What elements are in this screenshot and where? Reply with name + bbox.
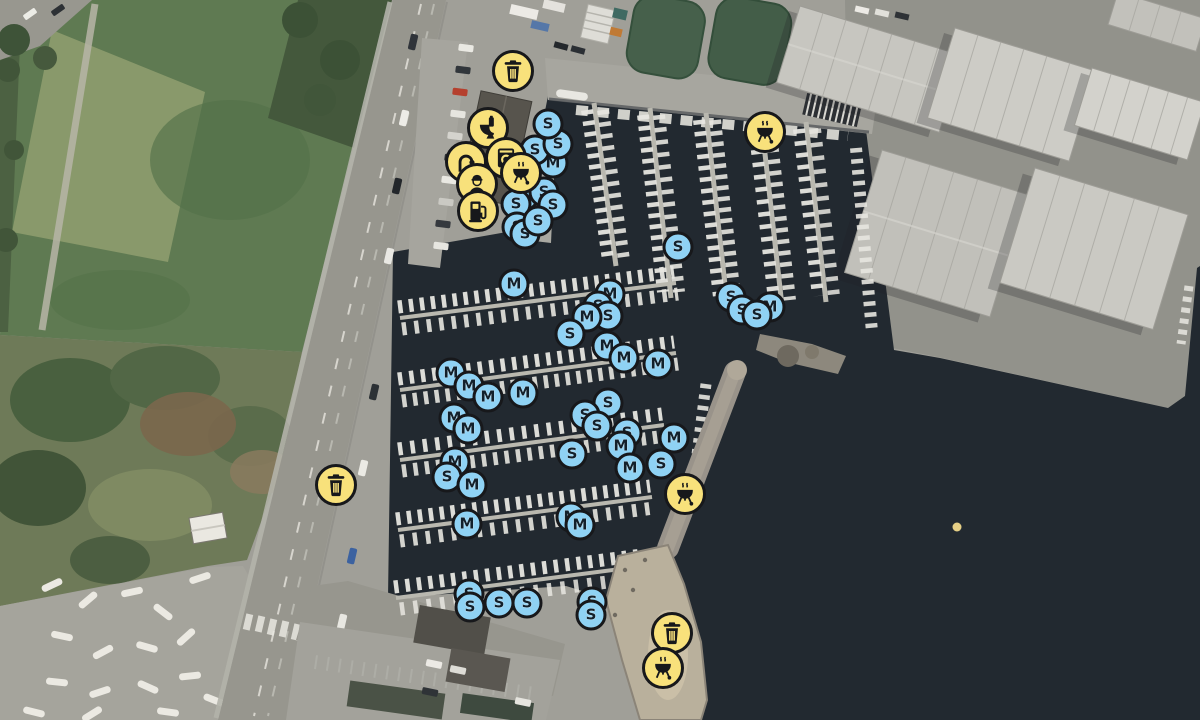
berth-marker-s[interactable]: S	[555, 319, 586, 350]
trash-icon	[500, 58, 526, 84]
grill-icon	[508, 160, 534, 186]
toilet-icon	[475, 115, 501, 141]
berth-marker-m[interactable]: M	[565, 510, 596, 541]
berth-marker-s[interactable]: S	[484, 588, 515, 619]
berth-marker-m[interactable]: M	[499, 269, 530, 300]
berth-marker-m[interactable]: M	[643, 349, 674, 380]
trash-icon	[659, 620, 685, 646]
berth-marker-s[interactable]: S	[533, 109, 564, 140]
facility-marker-grill-1[interactable]	[500, 152, 542, 194]
facility-marker-waste-1[interactable]	[492, 50, 534, 92]
berth-marker-m[interactable]: M	[615, 453, 646, 484]
facility-marker-grill-4[interactable]	[642, 647, 684, 689]
berth-marker-m[interactable]: M	[508, 378, 539, 409]
facility-marker-fuel-1[interactable]	[457, 190, 499, 232]
marina-map-canvas[interactable]: MSSSSSSSSSSSMMSSMSMMMSSMSMMMMMMSSSSMSMSM…	[0, 0, 1200, 720]
berth-marker-s[interactable]: S	[663, 232, 694, 263]
berth-marker-m[interactable]: M	[452, 509, 483, 540]
berth-marker-s[interactable]: S	[742, 300, 773, 331]
berth-marker-m[interactable]: M	[609, 343, 640, 374]
facility-marker-grill-2[interactable]	[744, 111, 786, 153]
facility-marker-waste-2[interactable]	[315, 464, 357, 506]
facility-marker-grill-3[interactable]	[664, 473, 706, 515]
grill-icon	[752, 119, 778, 145]
berth-marker-s[interactable]: S	[523, 206, 554, 237]
map-markers-layer: MSSSSSSSSSSSMMSSMSMMMSSMSMMMMMMSSSSMSMSM…	[0, 0, 1200, 720]
trash-icon	[323, 472, 349, 498]
grill-icon	[672, 481, 698, 507]
berth-marker-s[interactable]: S	[576, 600, 607, 631]
berth-marker-s[interactable]: S	[512, 588, 543, 619]
berth-marker-m[interactable]: M	[457, 470, 488, 501]
berth-marker-s[interactable]: S	[455, 592, 486, 623]
berth-marker-s[interactable]: S	[646, 449, 677, 480]
berth-marker-m[interactable]: M	[453, 414, 484, 445]
grill-icon	[650, 655, 676, 681]
berth-marker-m[interactable]: M	[473, 382, 504, 413]
berth-marker-s[interactable]: S	[557, 439, 588, 470]
fuel-icon	[465, 198, 491, 224]
